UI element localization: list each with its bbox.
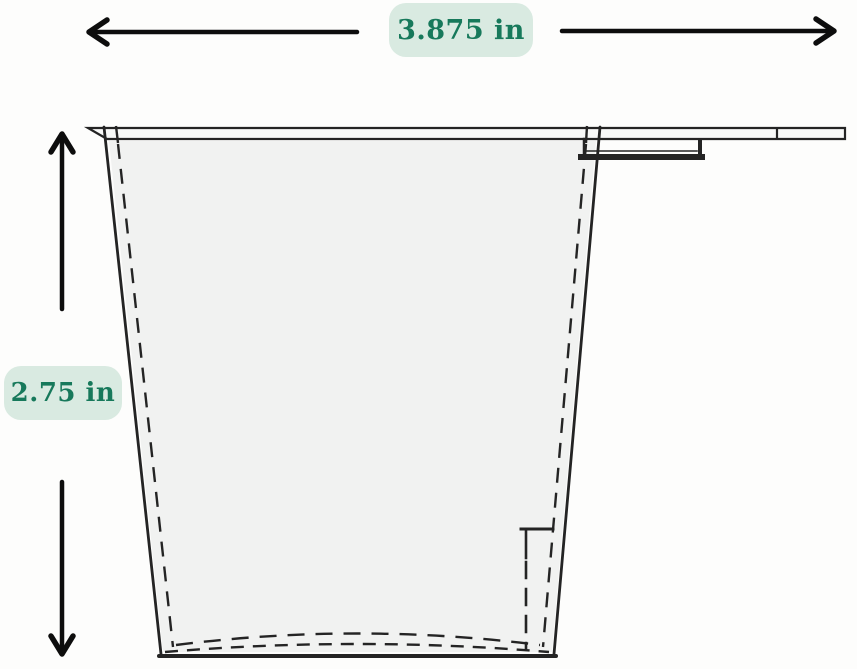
inner-wall-right-stub bbox=[586, 126, 587, 143]
height-dimension-label: 2.75 in bbox=[4, 366, 122, 420]
width-dimension-label: 3.875 in bbox=[389, 3, 533, 57]
top-flange bbox=[88, 127, 845, 140]
diagram-canvas: 3.875 in 2.75 in bbox=[0, 0, 857, 669]
cup-interior-fill bbox=[109, 141, 596, 652]
cup-cross-section-drawing bbox=[0, 0, 857, 669]
flange-outline bbox=[88, 128, 845, 139]
